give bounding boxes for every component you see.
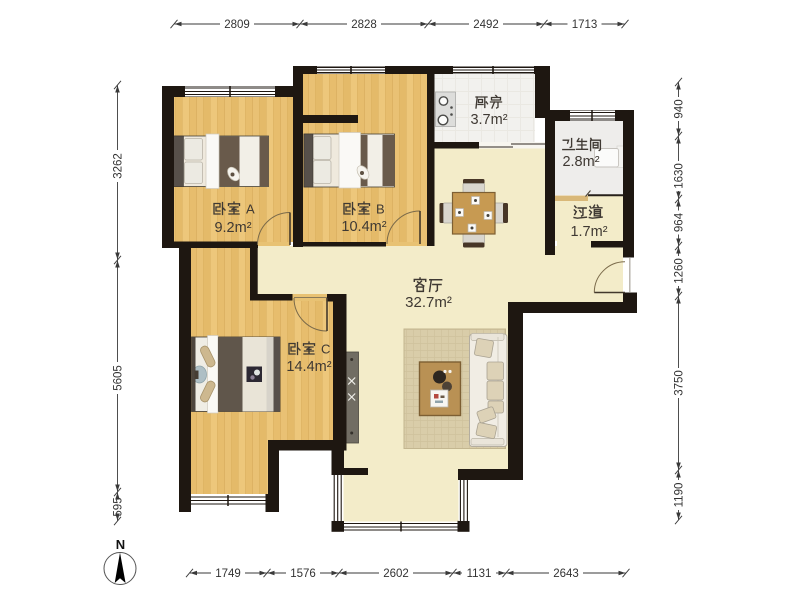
svg-text:A: A: [246, 202, 255, 217]
svg-text:1190: 1190: [674, 483, 686, 508]
svg-text:2602: 2602: [383, 568, 409, 580]
svg-text:C: C: [321, 342, 330, 357]
svg-text:10.4m²: 10.4m²: [341, 219, 386, 235]
svg-text:2492: 2492: [473, 19, 499, 31]
svg-text:2643: 2643: [553, 568, 579, 580]
svg-text:2809: 2809: [224, 19, 250, 31]
svg-text:3262: 3262: [113, 153, 125, 179]
svg-text:5605: 5605: [113, 365, 125, 391]
svg-text:2828: 2828: [351, 19, 377, 31]
svg-text:940: 940: [674, 99, 686, 118]
svg-text:1713: 1713: [572, 19, 598, 31]
svg-text:964: 964: [674, 212, 686, 232]
svg-text:9.2m²: 9.2m²: [214, 220, 251, 236]
svg-text:1630: 1630: [674, 163, 686, 189]
svg-text:32.7m²: 32.7m²: [405, 294, 452, 311]
svg-text:3750: 3750: [674, 370, 686, 396]
svg-text:2.8m²: 2.8m²: [562, 154, 599, 170]
svg-text:N: N: [116, 537, 125, 552]
svg-text:1.7m²: 1.7m²: [570, 224, 607, 240]
svg-text:1576: 1576: [290, 568, 316, 580]
svg-text:1260: 1260: [674, 258, 686, 284]
svg-text:595: 595: [113, 497, 125, 516]
svg-text:14.4m²: 14.4m²: [286, 359, 331, 375]
svg-text:3.7m²: 3.7m²: [470, 112, 507, 128]
svg-text:B: B: [376, 202, 385, 217]
svg-text:1749: 1749: [215, 568, 241, 580]
svg-text:1131: 1131: [467, 568, 492, 580]
